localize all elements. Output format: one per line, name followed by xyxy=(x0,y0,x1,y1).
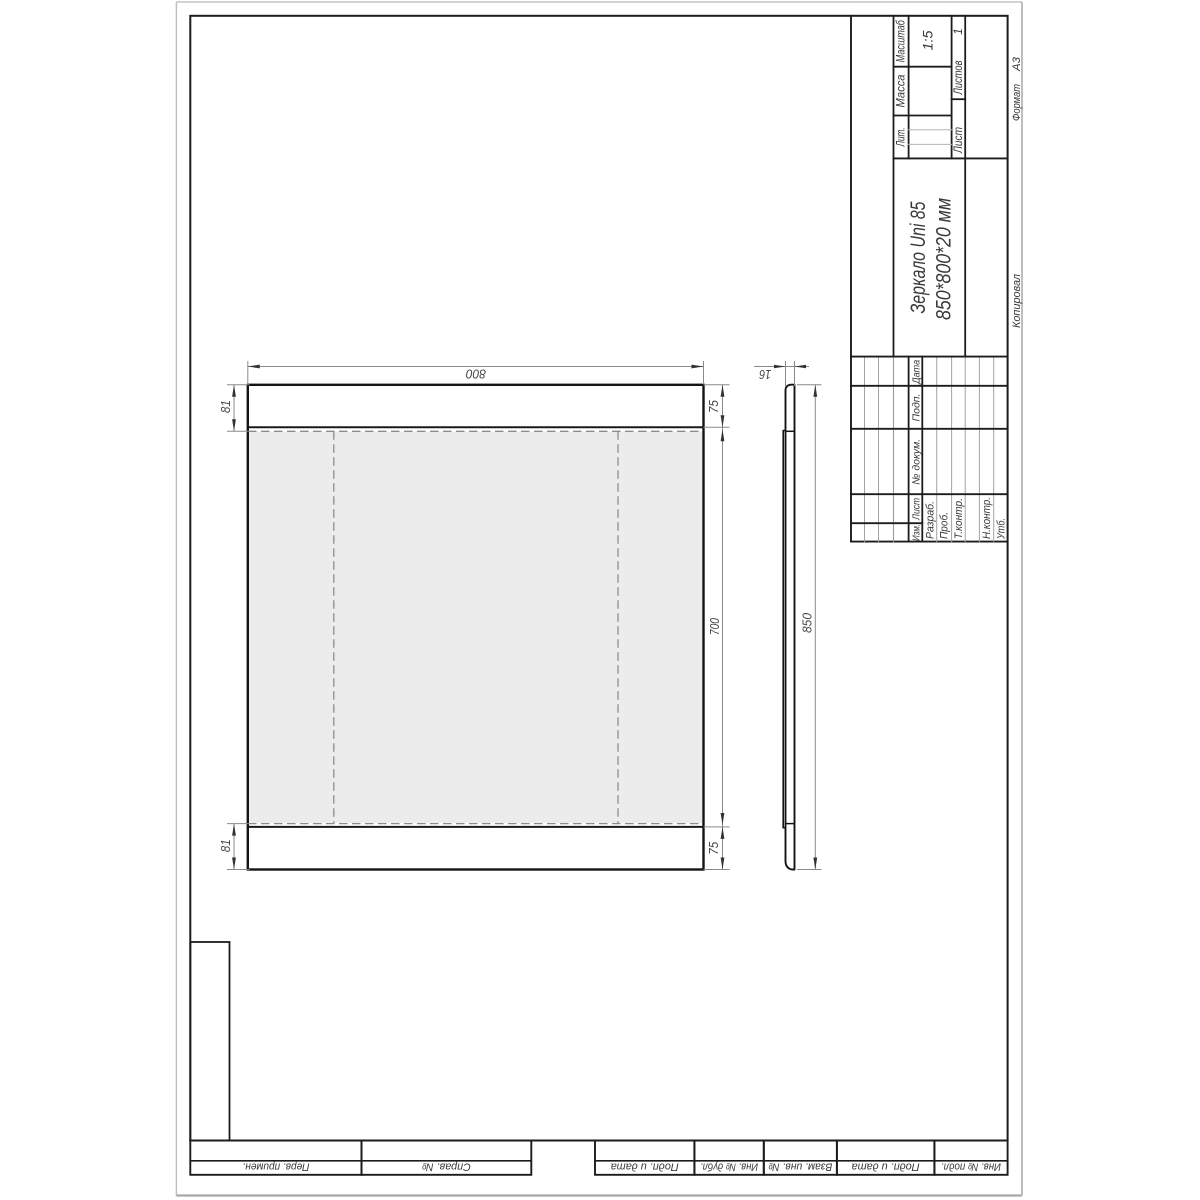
svg-text:16: 16 xyxy=(759,367,771,381)
svg-text:Лист: Лист xyxy=(910,498,922,521)
svg-text:Справ. №: Справ. № xyxy=(422,1161,471,1173)
svg-text:Инв. № дубл.: Инв. № дубл. xyxy=(700,1161,758,1173)
svg-text:Изм.: Изм. xyxy=(910,524,922,541)
svg-text:1: 1 xyxy=(951,28,965,35)
svg-text:Подп. и дата: Подп. и дата xyxy=(611,1161,679,1173)
svg-text:Лит.: Лит. xyxy=(894,128,908,148)
svg-text:Формат: Формат xyxy=(1011,84,1023,121)
svg-text:Взам. инв. №: Взам. инв. № xyxy=(768,1161,832,1173)
svg-text:75: 75 xyxy=(707,842,721,855)
svg-text:Разраб.: Разраб. xyxy=(924,501,936,539)
svg-text:850: 850 xyxy=(801,613,815,633)
svg-text:Зеркало Uni 85: Зеркало Uni 85 xyxy=(907,201,930,313)
svg-text:Масса: Масса xyxy=(894,74,908,107)
svg-text:Проб.: Проб. xyxy=(939,512,951,539)
svg-text:А3: А3 xyxy=(1011,56,1023,72)
svg-text:81: 81 xyxy=(219,839,233,852)
svg-text:№ докум.: № докум. xyxy=(910,439,922,485)
svg-text:Масштаб: Масштаб xyxy=(894,19,908,62)
svg-text:850*800*20 мм: 850*800*20 мм xyxy=(933,198,956,320)
svg-text:Копировал: Копировал xyxy=(1011,274,1023,328)
svg-text:Подп.: Подп. xyxy=(910,394,922,422)
svg-text:Перв. примен.: Перв. примен. xyxy=(243,1161,310,1173)
svg-text:700: 700 xyxy=(708,618,722,635)
svg-text:Н.контр.: Н.контр. xyxy=(981,497,993,539)
svg-text:800: 800 xyxy=(466,367,486,381)
svg-text:Дата: Дата xyxy=(910,360,922,385)
svg-text:Утб.: Утб. xyxy=(996,518,1008,540)
svg-text:75: 75 xyxy=(707,400,721,413)
svg-text:81: 81 xyxy=(219,400,233,413)
svg-text:1:5: 1:5 xyxy=(921,30,936,51)
svg-text:Подп. и дата: Подп. и дата xyxy=(852,1161,920,1173)
svg-text:Лист: Лист xyxy=(953,127,965,154)
svg-text:Листов: Листов xyxy=(953,61,965,96)
svg-text:Инв. № подл.: Инв. № подл. xyxy=(941,1161,1001,1173)
svg-text:Т.контр.: Т.контр. xyxy=(953,498,965,539)
